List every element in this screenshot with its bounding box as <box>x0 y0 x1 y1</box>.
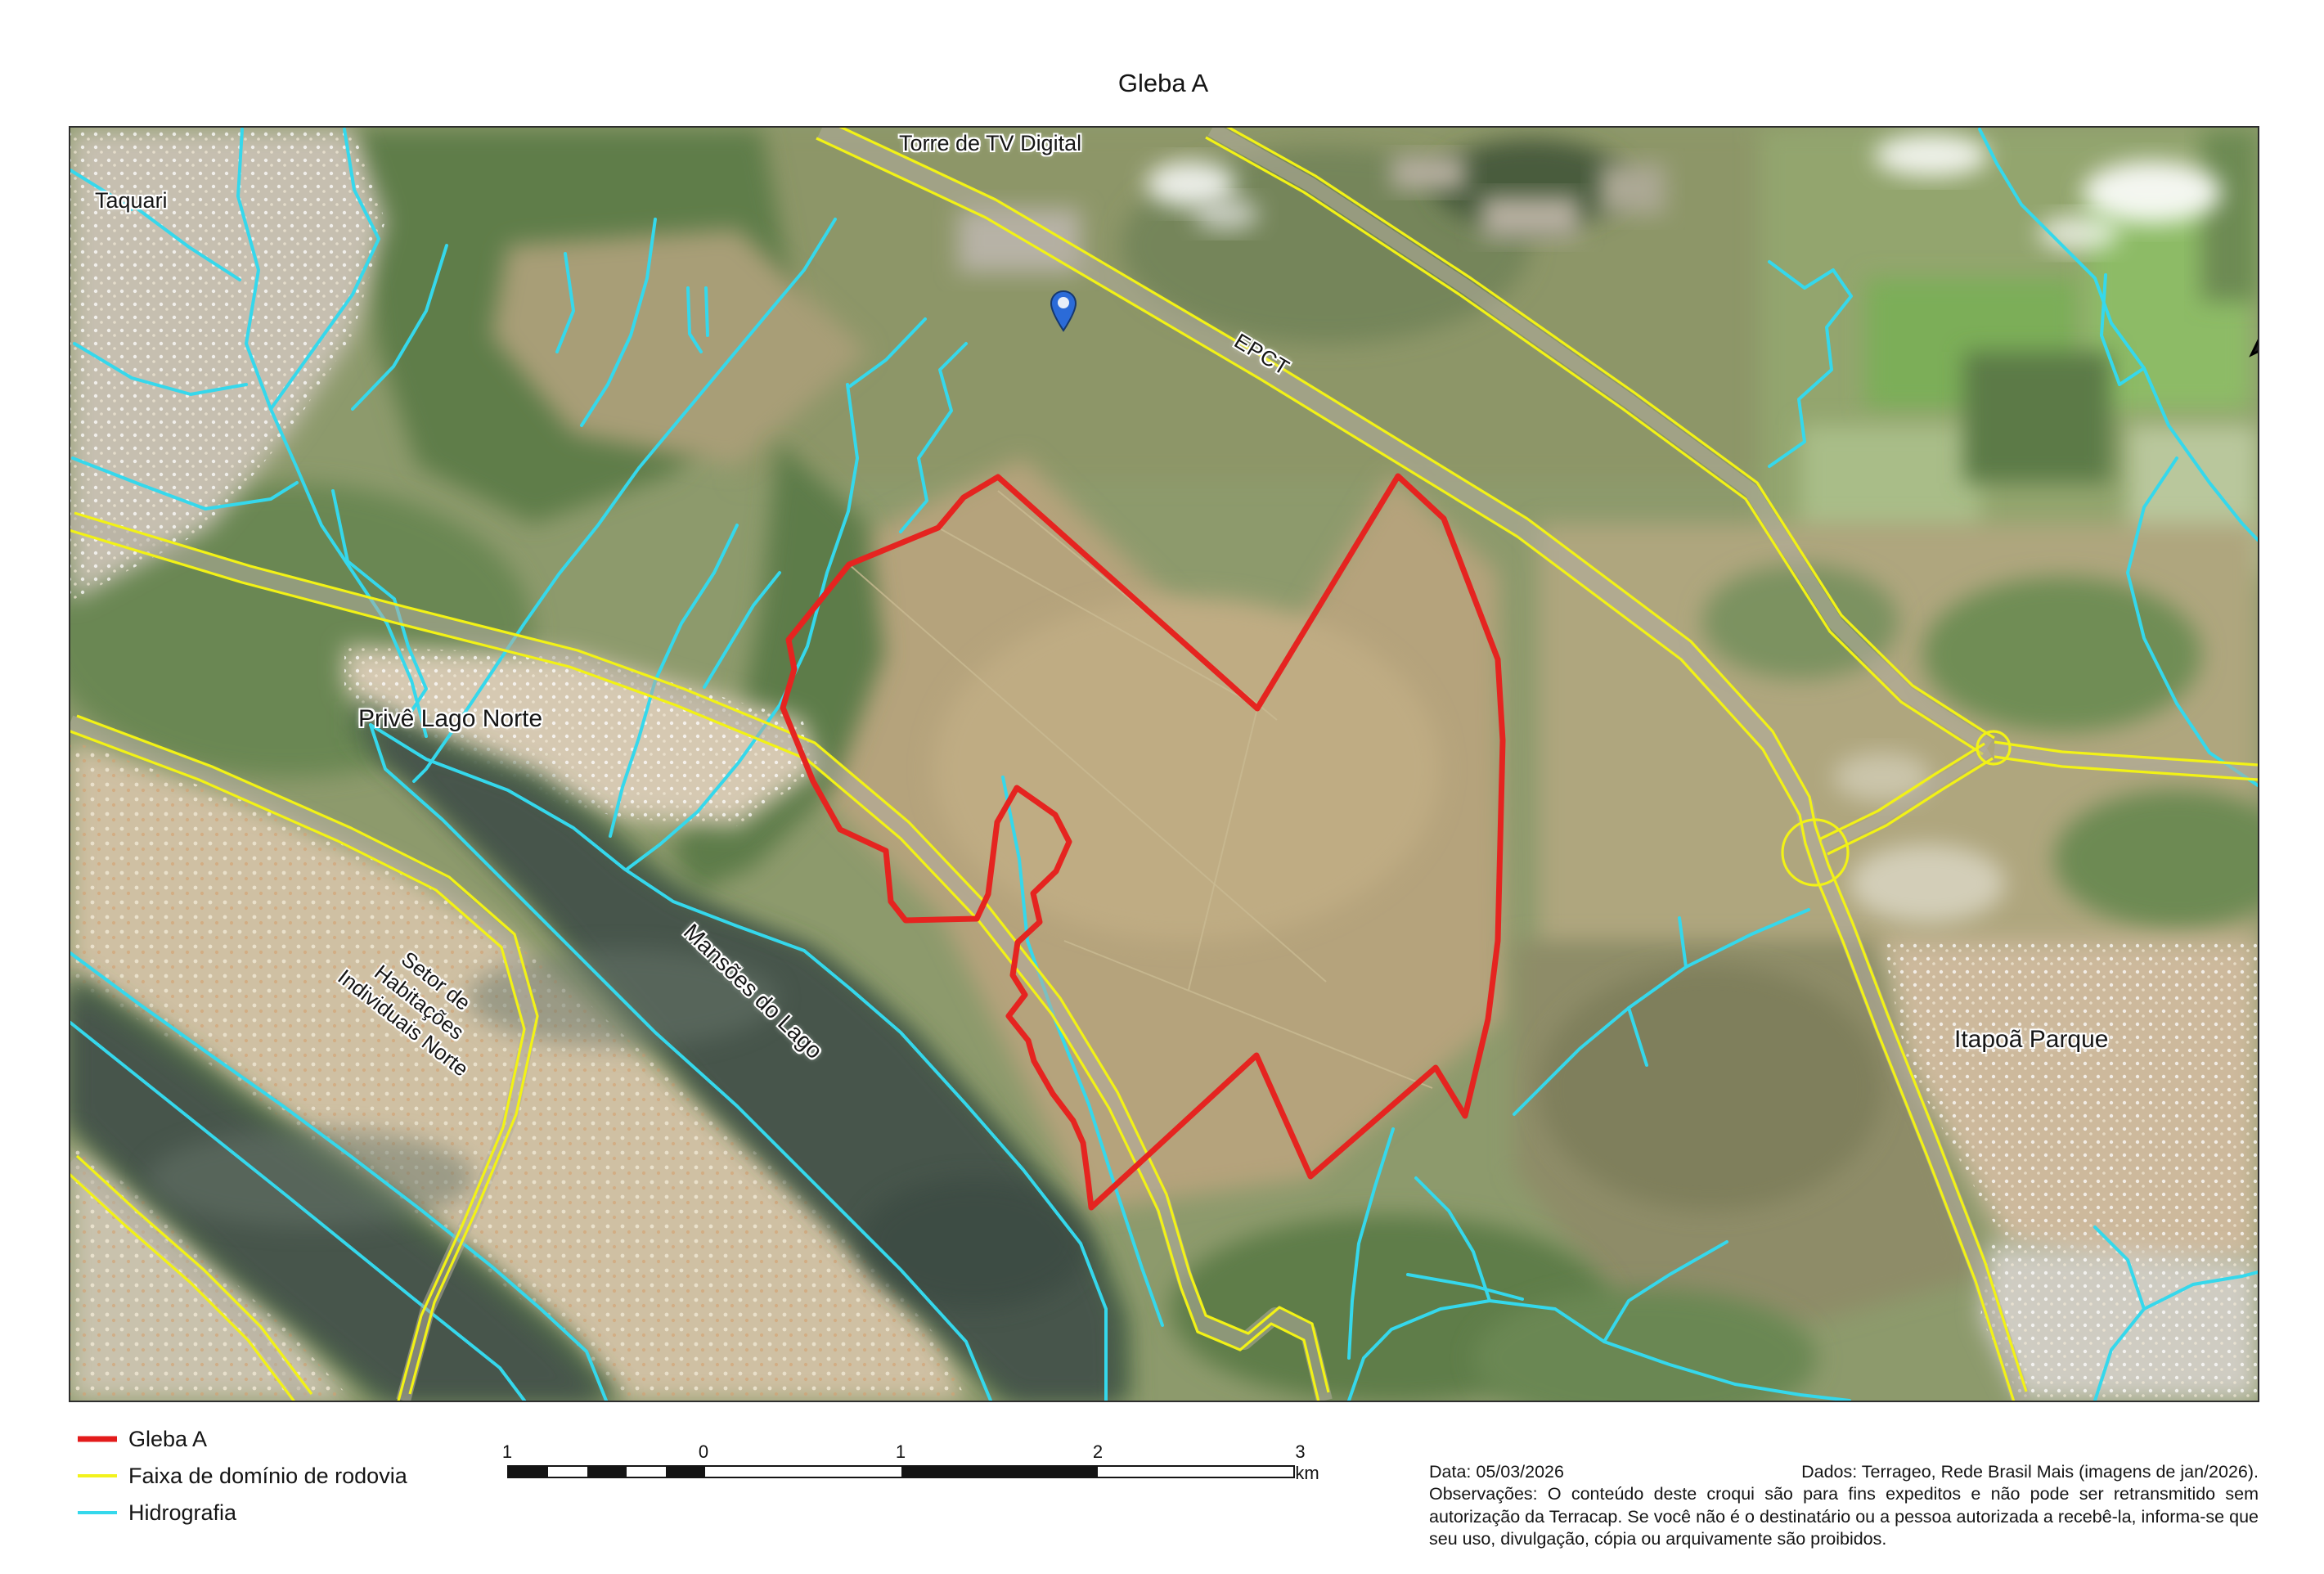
scale-tick-0: 0 <box>699 1441 708 1463</box>
legend-swatch-hidrografia <box>78 1509 117 1516</box>
scale-bar: 1 0 1 2 3 km <box>507 1441 1305 1482</box>
map-canvas: Taquari Torre de TV Digital EPCT Privê L… <box>69 126 2259 1402</box>
label-taquari: Taquari <box>95 188 168 214</box>
map-notes: Data: 05/03/2026 Dados: Terrageo, Rede B… <box>1429 1461 2259 1550</box>
scale-tick-3km: 3 km <box>1295 1441 1319 1484</box>
legend-label-gleba: Gleba A <box>128 1427 207 1452</box>
label-torre-de-tv-digital: Torre de TV Digital <box>899 131 1081 156</box>
legend-label-hidrografia: Hidrografia <box>128 1500 236 1526</box>
legend-label-rodovia: Faixa de domínio de rodovia <box>128 1464 407 1489</box>
scale-tick-1L: 1 <box>502 1441 512 1463</box>
scale-tick-1R: 1 <box>896 1441 906 1463</box>
label-prive-lago-norte: Privê Lago Norte <box>358 705 542 733</box>
scale-bar-bar <box>507 1465 1295 1478</box>
legend-swatch-gleba <box>78 1436 117 1442</box>
legend-item-rodovia: Faixa de domínio de rodovia <box>78 1464 407 1488</box>
scale-tick-2: 2 <box>1093 1441 1103 1463</box>
satellite-map <box>70 128 2258 1401</box>
map-pin-icon <box>1049 290 1078 336</box>
north-arrow-icon <box>2246 273 2259 369</box>
map-title: Gleba A <box>70 69 2257 98</box>
legend-item-gleba: Gleba A <box>78 1427 207 1451</box>
notes-dados: Dados: Terrageo, Rede Brasil Mais (image… <box>1801 1461 2259 1483</box>
label-itapoa-parque: Itapoã Parque <box>1954 1026 2108 1054</box>
notes-observacoes: Observações: O conteúdo deste croqui são… <box>1429 1483 2259 1550</box>
legend-swatch-rodovia <box>78 1473 117 1479</box>
notes-data: Data: 05/03/2026 <box>1429 1461 1564 1483</box>
legend-item-hidrografia: Hidrografia <box>78 1500 236 1525</box>
